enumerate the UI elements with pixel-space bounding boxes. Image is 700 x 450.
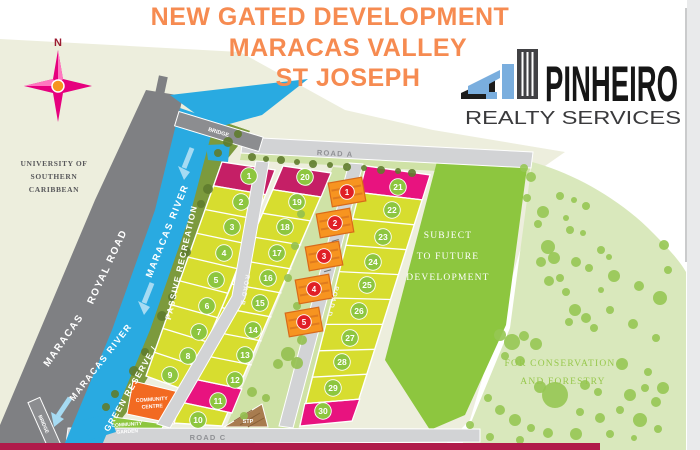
svg-text:10: 10 — [193, 415, 203, 425]
lot-marker: 23 — [375, 229, 392, 246]
lot-marker: 10 — [190, 412, 207, 429]
tree-icon — [486, 433, 494, 441]
tree-icon — [576, 408, 584, 416]
tree-icon — [214, 149, 222, 157]
road-a-label: ROAD A — [317, 148, 354, 159]
site-plan-flyer: BRIDGE BRIDGE 12345 12345678910111213141… — [0, 0, 700, 450]
svg-text:27: 27 — [345, 333, 355, 343]
lot-marker: 29 — [325, 380, 342, 397]
svg-text:29: 29 — [328, 383, 338, 393]
tree-icon — [494, 329, 506, 341]
svg-text:17: 17 — [272, 248, 282, 258]
tree-icon — [262, 394, 270, 402]
university-label-line1: UNIVERSITY OF — [21, 159, 88, 168]
bottom-accent-bar — [0, 443, 600, 450]
tree-icon — [562, 288, 570, 296]
tree-icon — [566, 226, 574, 234]
tree-icon — [595, 413, 605, 423]
conservation-label-line2: AND FORESTRY — [520, 377, 605, 387]
lot-marker: 3 — [224, 219, 241, 236]
tree-icon — [408, 169, 416, 177]
tree-icon — [544, 276, 554, 286]
lot-marker: 14 — [245, 322, 262, 339]
tree-icon — [223, 137, 233, 147]
svg-text:8: 8 — [186, 351, 191, 361]
tree-icon — [556, 192, 564, 200]
lot-marker: 19 — [289, 194, 306, 211]
svg-text:24: 24 — [368, 257, 378, 267]
svg-text:21: 21 — [393, 182, 403, 192]
tree-icon — [466, 421, 474, 429]
tree-icon — [284, 274, 292, 282]
lot-marker: 1 — [241, 168, 258, 185]
tree-icon — [509, 414, 521, 426]
tree-icon — [606, 306, 614, 314]
tree-icon — [291, 242, 299, 250]
tree-icon — [395, 168, 401, 174]
tree-icon — [541, 240, 555, 254]
lot-marker: 17 — [269, 245, 286, 262]
svg-text:26: 26 — [354, 306, 364, 316]
tree-icon — [598, 287, 604, 293]
flyer-title-line1: NEW GATED DEVELOPMENT — [151, 3, 510, 31]
lot-marker: 16 — [260, 270, 277, 287]
tree-icon — [504, 334, 520, 350]
university-label-line3: CARIBBEAN — [29, 185, 79, 194]
lot-marker: 27 — [342, 330, 359, 347]
tree-icon — [534, 220, 542, 228]
tree-icon — [631, 435, 637, 441]
tree-icon — [523, 194, 531, 202]
flyer-title-line3: ST JOSEPH — [276, 64, 421, 92]
svg-text:9: 9 — [168, 370, 173, 380]
tree-icon — [548, 252, 560, 264]
svg-text:16: 16 — [263, 273, 273, 283]
svg-text:18: 18 — [280, 222, 290, 232]
tree-icon — [377, 166, 385, 174]
university-label-line2: SOUTHERN — [31, 172, 78, 181]
tree-icon — [247, 387, 257, 397]
lot-marker: 9 — [162, 367, 179, 384]
tree-icon — [634, 281, 644, 291]
tree-icon — [361, 165, 367, 171]
tree-icon — [590, 324, 598, 332]
tree-icon — [203, 184, 213, 194]
tree-icon — [519, 331, 529, 341]
future-dev-label-line2: TO FUTURE — [417, 252, 480, 262]
model-home-marker: 1 — [340, 185, 355, 200]
model-home-marker: 2 — [328, 216, 343, 231]
svg-text:30: 30 — [318, 406, 328, 416]
svg-text:20: 20 — [300, 172, 310, 182]
tree-icon — [606, 430, 614, 438]
model-home-marker: 4 — [307, 282, 322, 297]
right-edge-strip — [687, 0, 700, 450]
tree-icon — [111, 390, 119, 398]
tree-icon — [234, 130, 242, 138]
lot-marker: 18 — [277, 219, 294, 236]
tree-icon — [582, 202, 590, 210]
lot-marker: 25 — [359, 277, 376, 294]
svg-text:1: 1 — [247, 171, 252, 181]
tree-icon — [516, 436, 524, 444]
tree-icon — [294, 159, 300, 165]
lot-marker: 28 — [334, 354, 351, 371]
svg-text:4: 4 — [312, 285, 317, 294]
model-home-marker: 5 — [297, 315, 312, 330]
svg-text:1: 1 — [345, 188, 350, 197]
tree-icon — [585, 264, 593, 272]
tree-icon — [654, 425, 662, 433]
lot-marker: 8 — [180, 348, 197, 365]
tree-icon — [597, 246, 605, 254]
lot-marker: 6 — [199, 298, 216, 315]
tree-icon — [664, 266, 672, 274]
lot-marker: 7 — [191, 324, 208, 341]
future-dev-label-line1: SUBJECT — [424, 231, 473, 241]
svg-text:14: 14 — [248, 325, 258, 335]
lot-marker: 26 — [351, 303, 368, 320]
tree-icon — [616, 406, 624, 414]
tree-icon — [571, 197, 577, 203]
tree-icon — [657, 382, 669, 394]
lot-marker: 13 — [237, 347, 254, 364]
lot-marker: 4 — [216, 245, 233, 262]
tree-icon — [628, 319, 638, 329]
tree-icon — [263, 156, 269, 162]
svg-text:3: 3 — [322, 252, 327, 261]
tree-icon — [526, 172, 536, 182]
tree-icon — [291, 357, 303, 369]
logo-name: PINHEIRO — [545, 56, 678, 112]
tree-icon — [530, 338, 542, 350]
tree-icon — [659, 240, 669, 250]
svg-text:15: 15 — [255, 298, 265, 308]
tree-icon — [537, 206, 549, 218]
tree-icon — [653, 291, 667, 305]
tree-icon — [633, 413, 647, 427]
tree-icon — [556, 274, 564, 282]
lot-marker: 20 — [297, 169, 314, 186]
tree-icon — [297, 335, 307, 345]
svg-text:2: 2 — [239, 197, 244, 207]
svg-text:23: 23 — [378, 232, 388, 242]
compass-north-label: N — [54, 37, 62, 49]
tree-icon — [102, 403, 110, 411]
tree-icon — [608, 270, 620, 282]
stp-label: STP — [243, 419, 254, 425]
tree-icon — [569, 304, 581, 316]
lot-marker: 22 — [384, 202, 401, 219]
svg-text:28: 28 — [337, 357, 347, 367]
tree-icon — [581, 313, 591, 323]
tree-icon — [570, 428, 582, 440]
svg-text:22: 22 — [387, 205, 397, 215]
tree-icon — [248, 153, 256, 161]
svg-text:3: 3 — [230, 222, 235, 232]
flyer-title-line2: MARACAS VALLEY — [229, 34, 467, 62]
svg-text:13: 13 — [240, 350, 250, 360]
tree-icon — [495, 405, 505, 415]
svg-text:12: 12 — [230, 375, 240, 385]
svg-text:19: 19 — [292, 197, 302, 207]
lot-marker: 2 — [233, 194, 250, 211]
lot-marker: 24 — [365, 254, 382, 271]
tree-icon — [571, 257, 581, 267]
tree-icon — [652, 334, 660, 342]
svg-text:6: 6 — [205, 301, 210, 311]
future-dev-label-line3: DEVELOPMENT — [406, 273, 489, 283]
tree-icon — [297, 210, 305, 218]
conservation-label-line1: FOR CONSERVATION — [505, 359, 616, 369]
tree-icon — [606, 254, 612, 260]
road-c-label: ROAD C — [190, 433, 227, 442]
tree-icon — [651, 397, 661, 407]
tree-icon — [594, 388, 602, 396]
tree-icon — [343, 163, 351, 171]
logo-tagline: REALTY SERVICES — [465, 107, 681, 128]
svg-text:4: 4 — [222, 248, 227, 258]
tree-icon — [484, 394, 492, 402]
svg-text:2: 2 — [333, 219, 338, 228]
tree-icon — [616, 358, 628, 370]
svg-text:5: 5 — [302, 318, 307, 327]
svg-text:25: 25 — [362, 280, 372, 290]
tree-icon — [563, 215, 569, 221]
model-home-marker: 3 — [317, 249, 332, 264]
lot-marker: 12 — [227, 372, 244, 389]
tree-icon — [580, 230, 586, 236]
lot-marker: 11 — [210, 393, 227, 410]
svg-text:5: 5 — [214, 275, 219, 285]
lot-marker: 5 — [208, 272, 225, 289]
lot-marker: 30 — [315, 403, 332, 420]
tree-icon — [565, 318, 573, 326]
svg-text:11: 11 — [214, 396, 223, 406]
tree-icon — [527, 424, 535, 432]
tree-icon — [543, 428, 553, 438]
tree-icon — [536, 257, 546, 267]
tree-icon — [644, 368, 652, 376]
tree-icon — [277, 156, 285, 164]
tree-icon — [624, 389, 636, 401]
tree-icon — [309, 160, 317, 168]
lot-marker: 15 — [252, 295, 269, 312]
tree-icon — [641, 384, 649, 392]
svg-text:7: 7 — [197, 327, 202, 337]
tree-icon — [520, 164, 528, 172]
tree-icon — [327, 162, 333, 168]
lot-marker: 21 — [390, 179, 407, 196]
tree-icon — [273, 359, 283, 369]
